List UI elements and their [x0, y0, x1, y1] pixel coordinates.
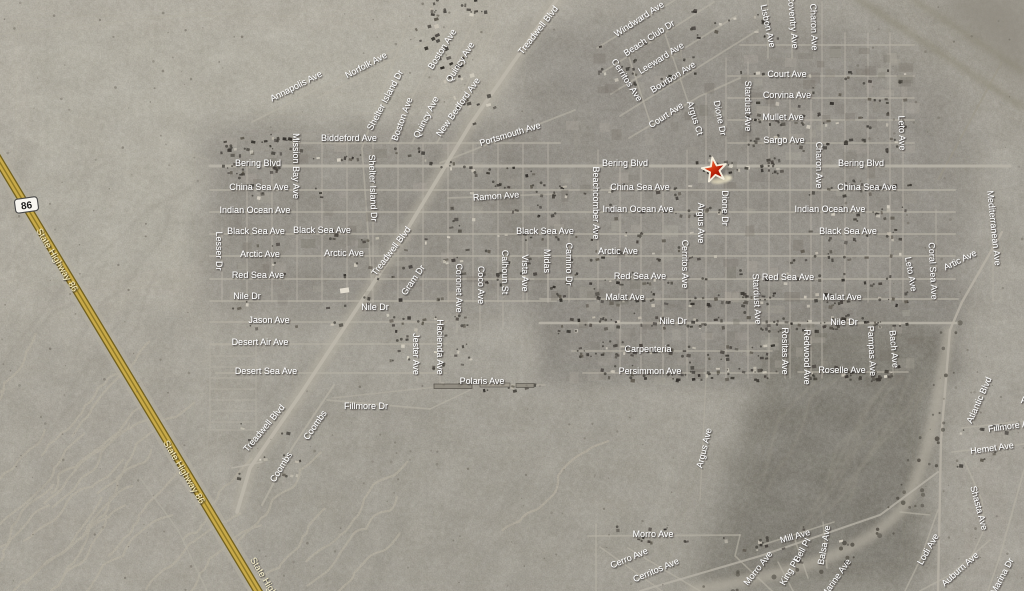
svg-text:Arctic Ave: Arctic Ave	[240, 249, 280, 259]
svg-text:Coronet Ave: Coronet Ave	[454, 263, 464, 312]
svg-text:Black Sea Ave: Black Sea Ave	[819, 226, 877, 236]
svg-text:Bering Blvd: Bering Blvd	[602, 158, 648, 168]
svg-text:China Sea Ave: China Sea Ave	[610, 182, 669, 192]
svg-text:Hacienda Ave: Hacienda Ave	[435, 319, 445, 374]
svg-text:Cerritos Ave: Cerritos Ave	[680, 240, 690, 289]
svg-text:Corvina Ave: Corvina Ave	[763, 90, 811, 100]
svg-text:Mullet Ave: Mullet Ave	[762, 112, 803, 122]
svg-text:Coco Ave: Coco Ave	[476, 266, 486, 304]
svg-text:Indian Ocean Ave: Indian Ocean Ave	[603, 204, 674, 214]
svg-text:Red Sea Ave: Red Sea Ave	[614, 271, 666, 281]
svg-text:China Sea Ave: China Sea Ave	[837, 182, 896, 192]
svg-text:Indian Ocean Ave: Indian Ocean Ave	[220, 205, 291, 215]
svg-text:Mission Bay Ave: Mission Bay Ave	[291, 133, 301, 199]
svg-text:Redwood Ave: Redwood Ave	[802, 329, 812, 384]
svg-text:Black Sea Ave: Black Sea Ave	[227, 226, 285, 236]
svg-text:Malat Ave: Malat Ave	[605, 292, 644, 302]
svg-text:Nile Dr: Nile Dr	[233, 291, 261, 301]
svg-text:Arctic Ave: Arctic Ave	[598, 246, 638, 256]
svg-text:Morro Ave: Morro Ave	[633, 529, 674, 539]
svg-text:Black Sea Ave: Black Sea Ave	[516, 226, 574, 236]
svg-text:Dione Dr: Dione Dr	[720, 190, 730, 226]
svg-text:Bering Blvd: Bering Blvd	[235, 158, 281, 168]
svg-text:Jester Ave: Jester Ave	[411, 333, 421, 375]
svg-text:Red Sea Ave: Red Sea Ave	[762, 272, 814, 282]
svg-text:Camino Dr: Camino Dr	[564, 242, 574, 285]
svg-text:Arctic Ave: Arctic Ave	[324, 248, 364, 258]
svg-text:Indian Ocean Ave: Indian Ocean Ave	[795, 204, 866, 214]
svg-text:86: 86	[20, 200, 33, 213]
svg-text:Nile Dr: Nile Dr	[659, 316, 687, 326]
svg-text:Charon Ave: Charon Ave	[814, 142, 824, 189]
svg-text:Bering Blvd: Bering Blvd	[838, 158, 884, 168]
svg-text:Rositas Ave: Rositas Ave	[780, 327, 790, 374]
svg-text:Vista Ave: Vista Ave	[520, 254, 530, 291]
svg-text:Malat Ave: Malat Ave	[822, 292, 861, 302]
svg-text:Biddeford Ave: Biddeford Ave	[321, 133, 377, 143]
svg-text:Red Sea Ave: Red Sea Ave	[232, 270, 284, 280]
svg-text:Fillmore Dr: Fillmore Dr	[344, 401, 388, 411]
svg-text:Nile Dr: Nile Dr	[830, 317, 858, 327]
svg-text:Persimmon Ave: Persimmon Ave	[619, 366, 682, 376]
svg-text:Jason Ave: Jason Ave	[248, 315, 289, 325]
svg-text:Black Sea Ave: Black Sea Ave	[293, 225, 351, 235]
svg-text:Midas: Midas	[542, 249, 552, 274]
svg-text:Carpenteria: Carpenteria	[624, 344, 671, 354]
svg-text:China Sea Ave: China Sea Ave	[229, 182, 288, 192]
svg-text:Desert Sea Ave: Desert Sea Ave	[235, 366, 297, 376]
svg-text:Calhoun St: Calhoun St	[500, 250, 510, 295]
svg-text:Stardust Ave: Stardust Ave	[743, 81, 753, 132]
svg-text:Sargo Ave: Sargo Ave	[763, 135, 804, 145]
svg-text:Roselle Ave: Roselle Ave	[818, 365, 865, 375]
svg-text:Polaris Ave: Polaris Ave	[460, 376, 505, 386]
svg-text:Beachcomber Ave: Beachcomber Ave	[591, 167, 601, 240]
svg-text:Nile Dr: Nile Dr	[361, 302, 389, 312]
svg-text:Charon Ave: Charon Ave	[808, 3, 820, 50]
svg-text:Argus Ave: Argus Ave	[696, 203, 706, 244]
svg-text:Leto Ave: Leto Ave	[896, 115, 907, 150]
svg-text:Lesser Dr: Lesser Dr	[214, 231, 224, 270]
svg-text:Court Ave: Court Ave	[767, 69, 806, 79]
svg-text:Desert Air Ave: Desert Air Ave	[232, 337, 289, 347]
